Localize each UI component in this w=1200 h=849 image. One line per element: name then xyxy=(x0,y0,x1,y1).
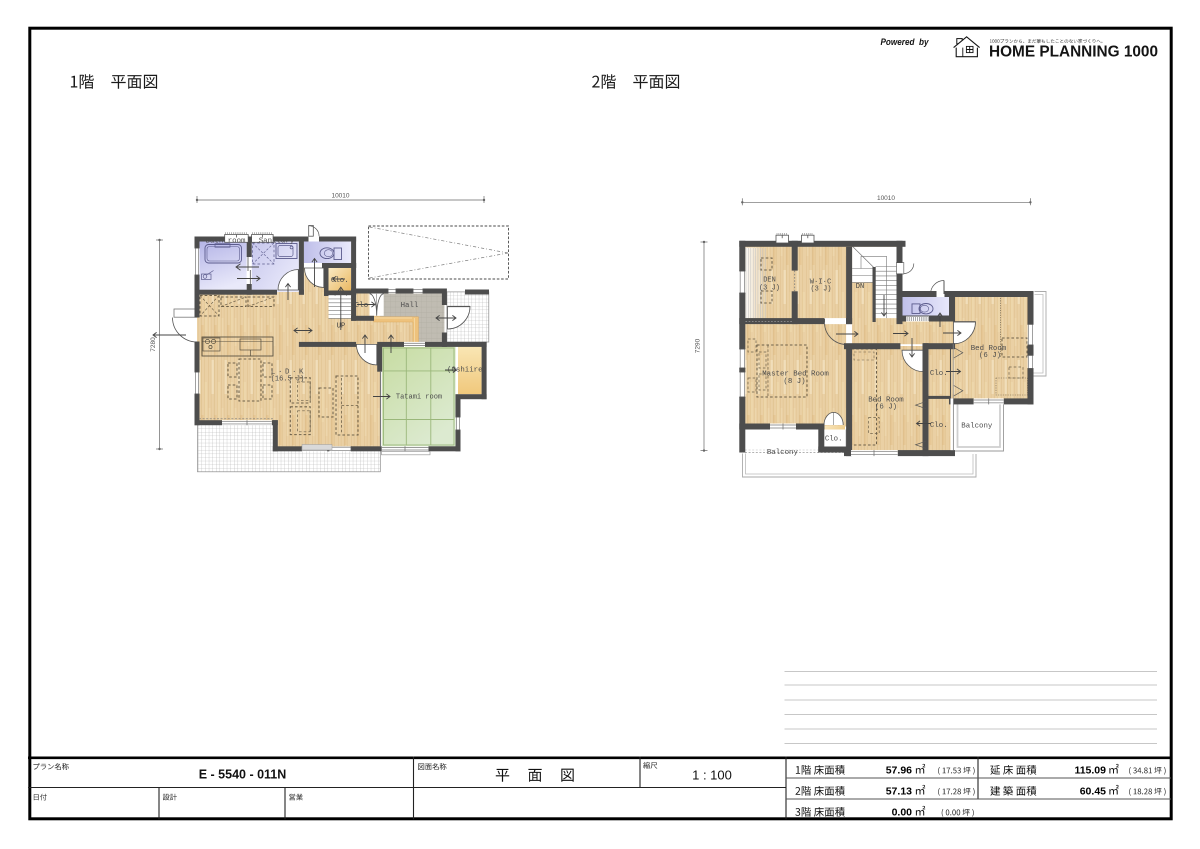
svg-text:7280: 7280 xyxy=(150,337,157,352)
svg-text:DEN: DEN xyxy=(763,277,776,285)
svg-text:7290: 7290 xyxy=(695,338,702,353)
svg-text:10010: 10010 xyxy=(331,193,349,200)
svg-text:Sanitary: Sanitary xyxy=(259,238,295,246)
svg-text:E - 5540 - 011N: E - 5540 - 011N xyxy=(199,768,287,782)
svg-text:Clo.: Clo. xyxy=(930,422,948,430)
svg-text:57.13: 57.13 xyxy=(886,786,912,798)
svg-text:(8 J): (8 J) xyxy=(783,378,805,386)
svg-text:Clo.: Clo. xyxy=(930,370,948,378)
svg-text:0.00: 0.00 xyxy=(892,807,913,819)
svg-text:(6 J): (6 J) xyxy=(979,352,1001,360)
svg-text:57.96: 57.96 xyxy=(886,765,912,777)
svg-text:Tatami room: Tatami room xyxy=(396,394,442,402)
svg-text:10010: 10010 xyxy=(877,195,895,202)
svg-text:(3 J): (3 J) xyxy=(759,285,780,293)
svg-text:(3 J): (3 J) xyxy=(810,286,831,294)
svg-text:Powered by: Powered by xyxy=(881,37,930,48)
svg-text:115.09: 115.09 xyxy=(1074,765,1106,777)
svg-text:Clo.: Clo. xyxy=(825,436,843,444)
svg-text:Balcony: Balcony xyxy=(767,449,799,457)
svg-text:HOME PLANNING 1000: HOME PLANNING 1000 xyxy=(989,43,1158,60)
svg-text:(6 J): (6 J) xyxy=(875,404,897,412)
svg-text:60.45: 60.45 xyxy=(1080,786,1106,798)
svg-text:DN: DN xyxy=(856,283,864,291)
svg-text:Hall: Hall xyxy=(401,302,419,310)
svg-text:Clo: Clo xyxy=(355,302,369,310)
svg-text:(16.5 J): (16.5 J) xyxy=(271,376,305,384)
svg-text:Bath room: Bath room xyxy=(206,238,246,246)
svg-text:1 : 100: 1 : 100 xyxy=(692,768,732,783)
svg-text:Balcony: Balcony xyxy=(961,423,993,431)
svg-text:UP: UP xyxy=(337,323,345,331)
